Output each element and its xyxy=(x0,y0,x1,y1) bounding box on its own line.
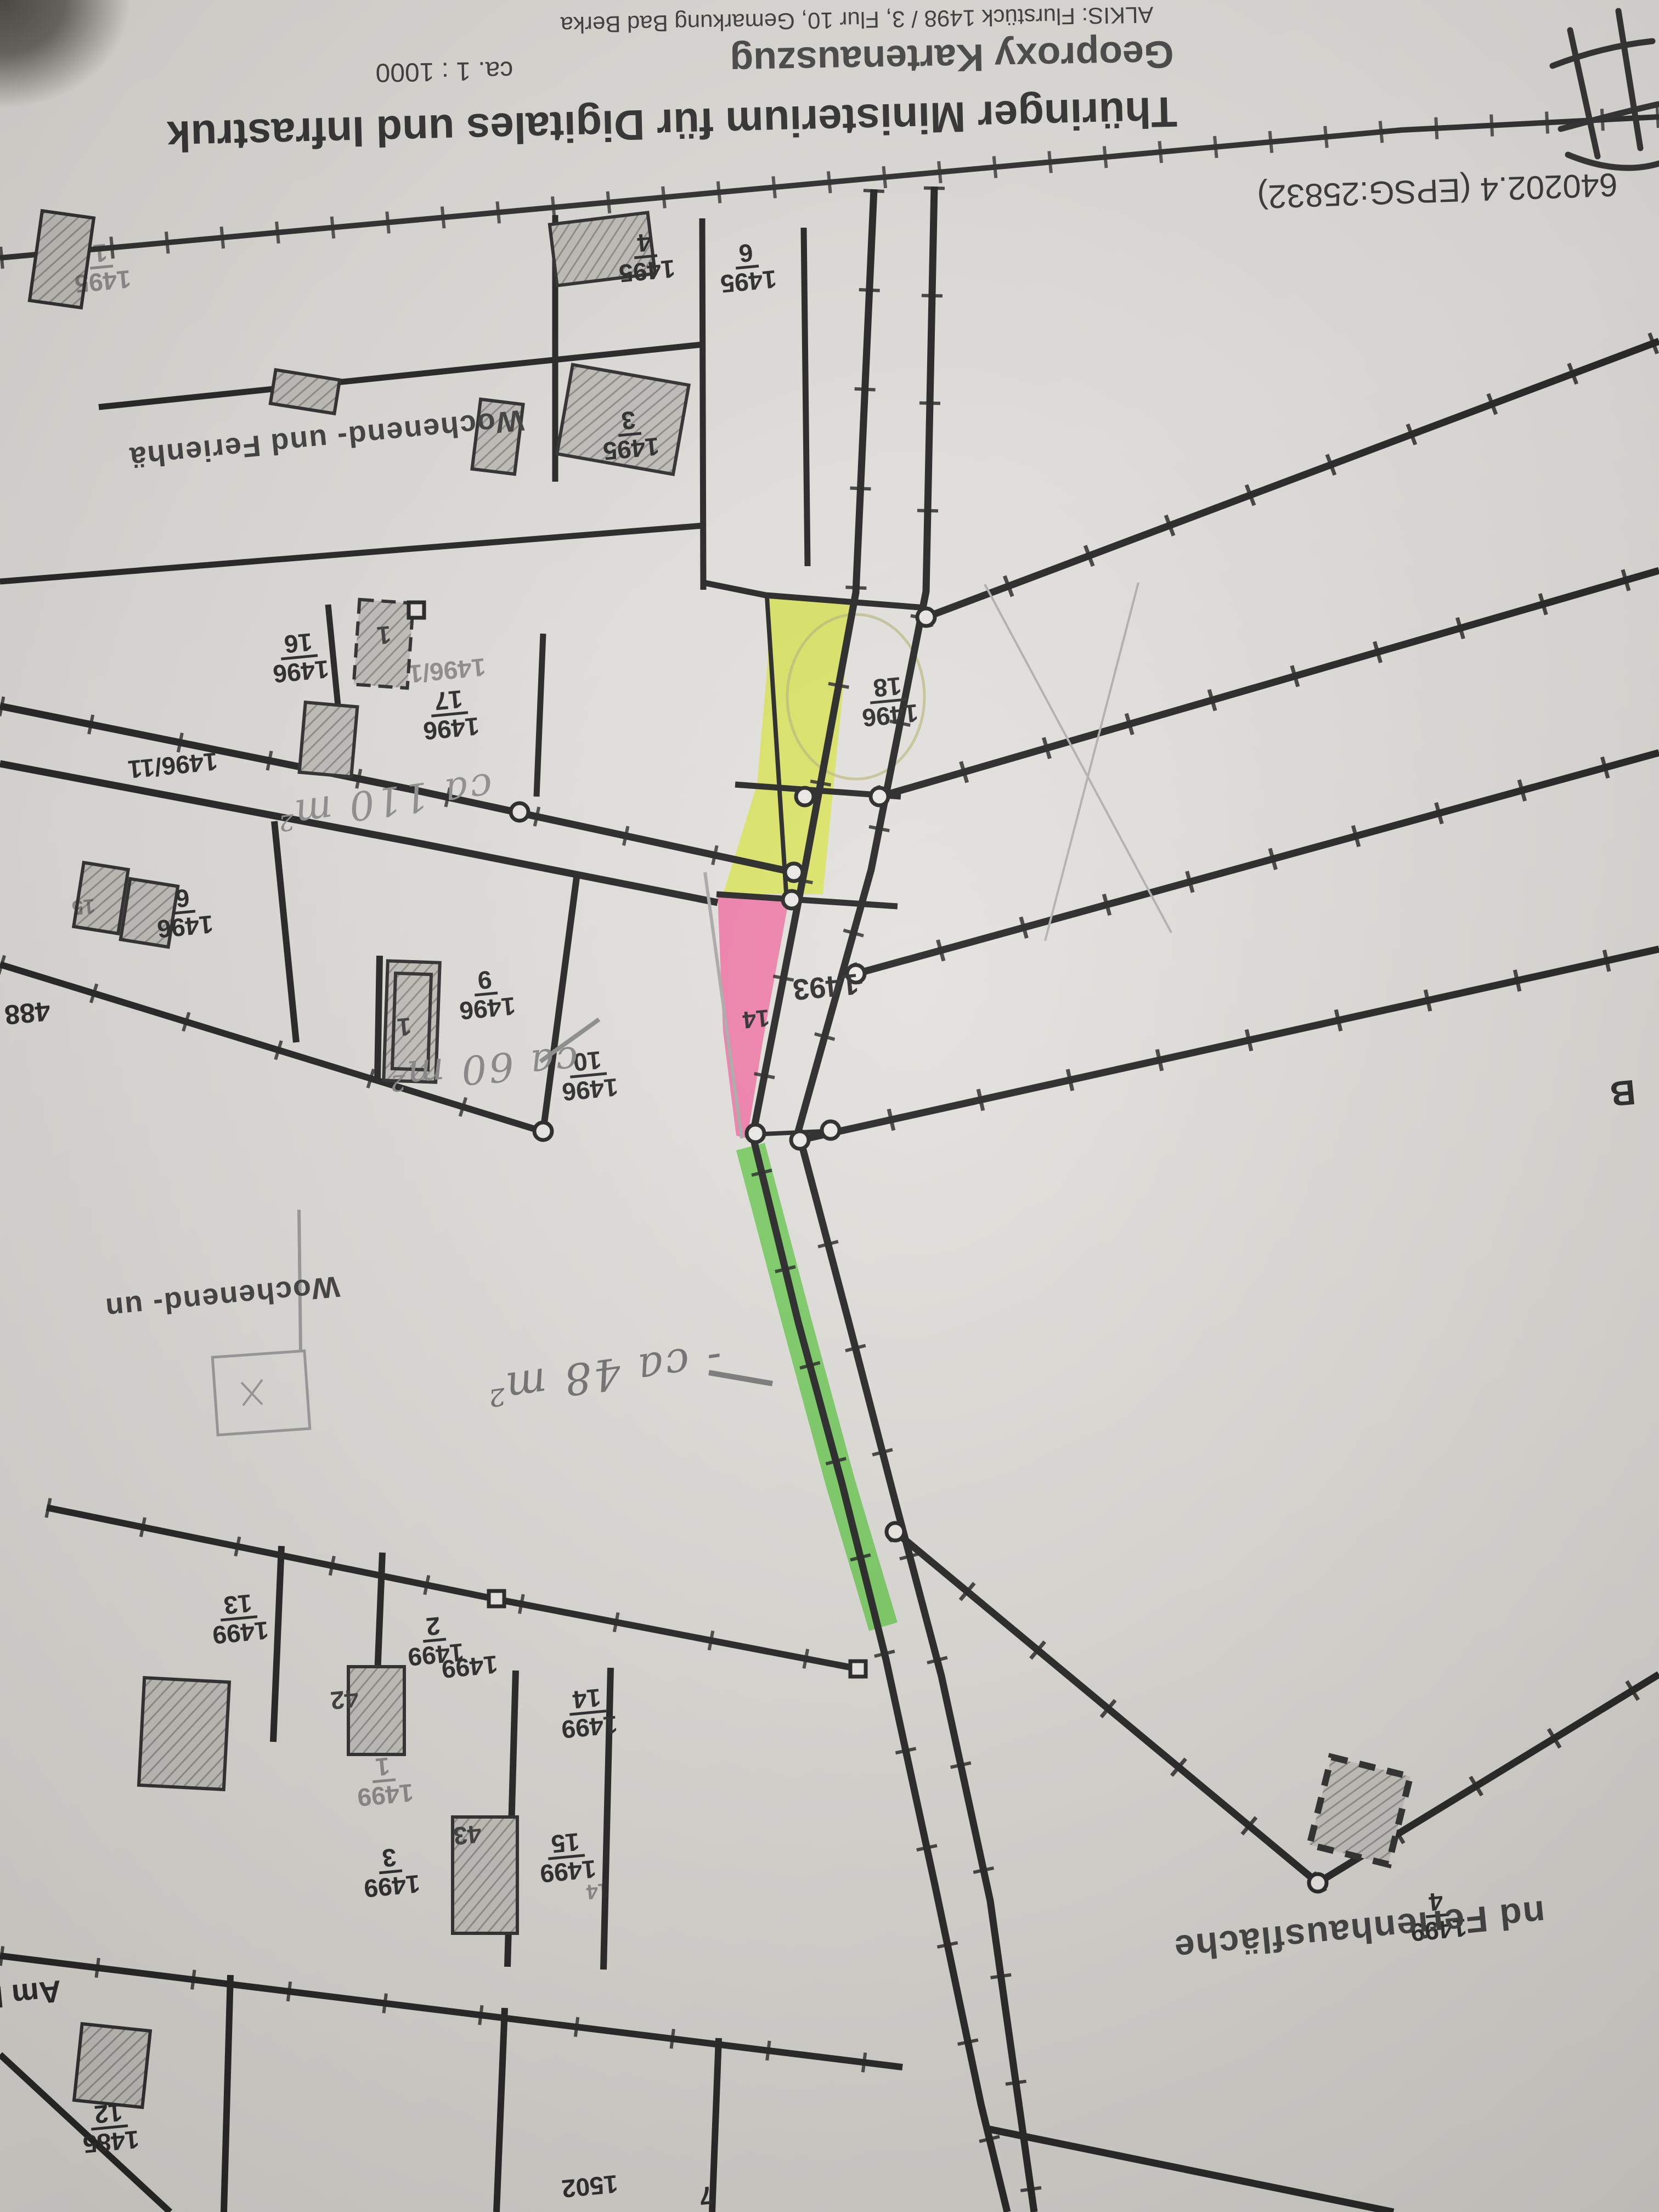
parcel-number: 1499 xyxy=(560,1712,618,1742)
parcel-denominator: 14 xyxy=(567,1684,607,1716)
parcel-label: 488 xyxy=(3,997,52,1029)
parcel-label: 15 xyxy=(71,895,96,918)
parcel-denominator: 3 xyxy=(616,407,641,437)
parcel-denominator: 9 xyxy=(472,966,498,997)
parcel-label: 1499 1 xyxy=(353,1751,414,1810)
parcel-number: 15 xyxy=(71,895,96,918)
parcel-denominator: 18 xyxy=(868,673,907,704)
parcel-number: 1499 xyxy=(441,1651,499,1682)
parcel-number: 1496/1 xyxy=(408,654,487,687)
parcel-number: 14 xyxy=(741,1005,770,1031)
highlight-yellow-1496-18 xyxy=(723,597,852,894)
parcel-number: 488 xyxy=(3,997,52,1029)
parcel-number: 7 xyxy=(698,2182,714,2209)
parcel-label: 1499 13 xyxy=(208,1589,269,1648)
parcel-label: 14 xyxy=(741,1005,770,1031)
parcel-denominator: 12 xyxy=(89,2099,128,2131)
parcel-label: 1496 17 xyxy=(419,685,480,744)
parcel-number: 1496 xyxy=(422,713,480,744)
road-lines xyxy=(753,187,1034,2212)
parcel-denominator: 1 xyxy=(370,1753,396,1784)
house-number: 1 xyxy=(396,1012,413,1042)
parcel-label: B xyxy=(1609,1074,1637,1111)
parcel-number: 14 xyxy=(585,1879,611,1903)
parcel-number: 1495 xyxy=(74,266,132,297)
parcel-label: 1499 15 xyxy=(536,1827,597,1887)
parcel-label: 1495 4 xyxy=(615,227,676,286)
parcel-number: 1502 xyxy=(561,2171,619,2202)
parcel-number: 1495 xyxy=(618,256,676,286)
parcel-denominator: 16 xyxy=(279,629,318,661)
parcel-label: 1485 12 xyxy=(79,2098,140,2157)
parcel-label: 1496 18 xyxy=(858,672,919,731)
parcel-number: 1495 xyxy=(602,433,660,464)
parcel-number: Am F xyxy=(0,1976,63,2014)
parcel-label: 7 xyxy=(698,2182,714,2209)
parcel-number: 1485 xyxy=(82,2126,140,2157)
parcel-number: B xyxy=(1609,1074,1637,1111)
parcel-label: 14 xyxy=(585,1879,611,1903)
document-title: Geoproxy Kartenauszug xyxy=(730,32,1174,84)
house-number-text: 43 xyxy=(452,1820,483,1851)
parcel-label: 1502 xyxy=(561,2171,619,2202)
photo-corner-shadow xyxy=(0,0,132,110)
parcel-denominator: 13 xyxy=(218,1590,258,1622)
scale-label: ca. 1 : 1000 xyxy=(375,55,513,87)
parcel-label: 1495 6 xyxy=(716,238,777,297)
parcel-label: 1496/1 xyxy=(408,654,487,687)
parcel-label: 1493 xyxy=(792,968,860,1005)
parcel-number: 1496 xyxy=(272,656,330,687)
parcel-label: 1499 3 xyxy=(360,1842,421,1901)
parcel-label: Am F xyxy=(0,1976,63,2014)
parcel-label: 1499 xyxy=(441,1651,499,1682)
parcel-denominator: 6 xyxy=(733,239,759,270)
handwritten-hash-logo xyxy=(1553,11,1659,168)
parcel-label: 1496 9 xyxy=(455,964,516,1024)
house-number: 43 xyxy=(452,1819,483,1852)
parcel-label: 1496 6 xyxy=(153,883,214,942)
house-number-text: 42 xyxy=(329,1684,360,1716)
house-number: 42 xyxy=(329,1684,360,1716)
parcel-denominator: 2 xyxy=(421,1612,446,1643)
parcel-number: 1496 xyxy=(458,993,516,1024)
map-linework xyxy=(0,0,1659,2212)
parcel-label: 1495 1 xyxy=(71,238,132,297)
buildings xyxy=(30,211,1410,2107)
parcel-number: 1499 xyxy=(363,1871,421,1901)
parcel-number: 1499 xyxy=(211,1617,269,1648)
parcel-number: 1496 xyxy=(156,911,214,942)
photo-of-cadastral-map: ALKIS: Flurstück 1498 / 3, Flur 10, Gema… xyxy=(0,0,1659,2212)
parcel-denominator: 15 xyxy=(546,1829,585,1860)
parcel-label: 1495 3 xyxy=(599,405,660,464)
parcel-denominator: 17 xyxy=(429,686,469,718)
parcel-number: 1499 xyxy=(356,1780,414,1810)
parcel-denominator: 3 xyxy=(377,1844,402,1875)
parcel-denominator: 6 xyxy=(170,884,195,915)
parcel-number: 1495 xyxy=(719,266,777,297)
parcel-denominator: 1 xyxy=(88,239,113,270)
parcel-number: 1496 xyxy=(861,700,919,731)
parcel-label: 1496 16 xyxy=(269,628,330,687)
parcel-number: 1493 xyxy=(792,968,860,1005)
house-number-text: 1 xyxy=(396,1012,413,1042)
house-number: 1 xyxy=(376,620,393,651)
parcel-label: 1499 14 xyxy=(557,1683,618,1742)
house-number-text: 1 xyxy=(376,620,392,650)
parcel-denominator: 4 xyxy=(632,229,657,259)
